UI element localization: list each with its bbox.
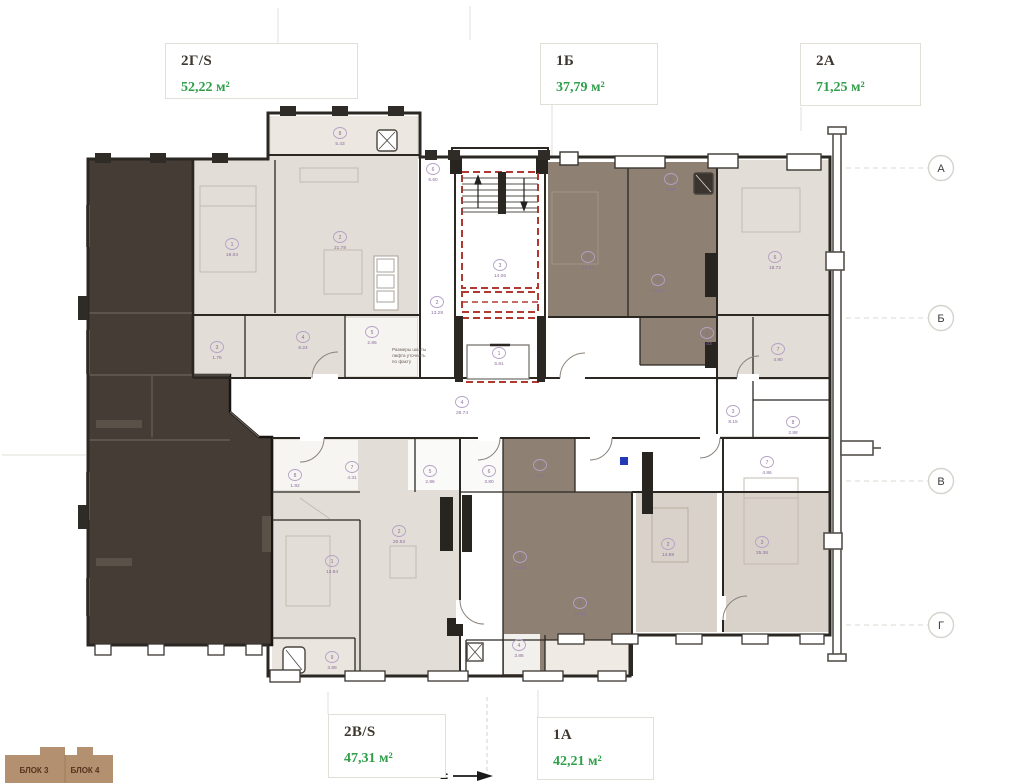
wall-foot xyxy=(148,644,164,655)
room-area: 2.82 xyxy=(666,187,676,193)
unit-area: 37,79 м² xyxy=(556,80,657,96)
wall-foot xyxy=(523,671,563,681)
wall-foot xyxy=(676,634,702,644)
pilaster xyxy=(95,153,111,163)
room-number: 2 xyxy=(436,300,439,306)
note-line: Размеры шахты xyxy=(392,347,426,352)
wall-foot xyxy=(558,634,584,644)
wall-foot xyxy=(246,644,262,655)
note-line: лифта уточнять xyxy=(392,353,426,358)
wall-foot xyxy=(208,644,224,655)
room-area: 8.24 xyxy=(298,345,308,351)
room-area: 4.31 xyxy=(347,475,357,481)
pilaster xyxy=(560,152,578,165)
room-area: 5.43 xyxy=(335,141,345,147)
unit-code: 1Б xyxy=(556,53,657,70)
wall-foot xyxy=(598,671,626,681)
room-area: 3.80 xyxy=(484,479,494,485)
grid-axis-label: Б xyxy=(937,313,944,325)
room-number: 4 xyxy=(461,400,464,406)
room-area: 2.86 xyxy=(425,479,435,485)
room-number: 3 xyxy=(732,409,735,415)
room-number: 8 xyxy=(294,473,297,479)
wall-foot xyxy=(428,671,468,681)
key-plan-block-3: БЛОК 3 xyxy=(20,766,49,775)
room-number: 1 xyxy=(231,242,234,248)
room-number: 1 xyxy=(539,463,542,469)
room-area: 2.03 xyxy=(702,341,712,347)
room-number: 2 xyxy=(667,542,670,548)
room-number: 6 xyxy=(488,469,491,475)
room-number: 2 xyxy=(657,278,660,284)
unit-callout-1a[interactable]: 1А 42,21 м² xyxy=(537,717,654,780)
room-number: 2 xyxy=(398,529,401,535)
wing-wall xyxy=(824,127,881,661)
room-area: 14.69 xyxy=(662,552,674,558)
pilaster xyxy=(708,154,738,168)
room-area: 4.90 xyxy=(773,357,783,363)
room-number: 6 xyxy=(432,167,435,173)
pilaster xyxy=(425,150,437,160)
unit-area: 47,31 м² xyxy=(344,751,445,767)
pilaster xyxy=(538,150,550,160)
room-number: 1 xyxy=(587,255,590,261)
room-area: 14.06 xyxy=(494,273,506,279)
room-area: 18.72 xyxy=(769,265,781,271)
room-number: 7 xyxy=(777,347,780,353)
room-number: 1 xyxy=(498,351,501,357)
wall-foot xyxy=(270,670,300,682)
wall-foot xyxy=(95,644,111,655)
room-area: 4.86 xyxy=(762,470,772,476)
room-area: 3.89 xyxy=(327,665,337,671)
pilaster xyxy=(212,153,228,163)
room-number: 5 xyxy=(429,469,432,475)
unit-callout-1b[interactable]: 1Б 37,79 м² xyxy=(540,43,658,105)
room-number: 8 xyxy=(792,420,795,426)
room-area: 13.94 xyxy=(326,569,338,575)
room-number: 3 xyxy=(499,263,502,269)
room-number: 6 xyxy=(774,255,777,261)
wall-foot xyxy=(345,671,385,681)
key-plan-block-4: БЛОК 4 xyxy=(71,766,100,775)
wall-foot xyxy=(742,634,768,644)
note-line: по факту xyxy=(392,359,412,364)
unit-callout-2gs[interactable]: 2Г/S 52,22 м² xyxy=(165,43,358,99)
unit-area: 71,25 м² xyxy=(816,80,920,96)
room-number: 4 xyxy=(518,643,521,649)
room-area: 21.78 xyxy=(334,245,346,251)
room-area: 6.27 xyxy=(535,473,545,479)
room-number: 3 xyxy=(216,345,219,351)
section-marker: = xyxy=(440,768,493,783)
pilaster xyxy=(448,150,460,160)
unit-code: 1А xyxy=(553,727,653,744)
room-number: 9 xyxy=(331,655,334,661)
room-number: 1 xyxy=(331,559,334,565)
room-area: 2.86 xyxy=(367,340,377,346)
room-number: 5 xyxy=(371,330,374,336)
room-number: 3 xyxy=(579,601,582,607)
room-number: 3 xyxy=(761,540,764,546)
unit-callout-2a[interactable]: 2А 71,25 м² xyxy=(800,43,921,106)
room-area: 13.04 xyxy=(582,265,594,271)
room-area: 1.92 xyxy=(290,483,300,489)
lift-note: Размеры шахты лифта уточнять по факту xyxy=(392,347,426,364)
pilaster xyxy=(787,154,821,170)
wall-foot xyxy=(800,634,824,644)
pilaster xyxy=(388,106,404,116)
room-fills xyxy=(193,116,830,676)
blue-marker xyxy=(620,457,628,465)
room-area: 8.15 xyxy=(728,419,738,425)
unit-area: 42,21 м² xyxy=(553,754,653,770)
unit-code: 2В/S xyxy=(344,724,445,741)
unit-code: 2Г/S xyxy=(181,53,357,70)
pilaster xyxy=(78,296,88,320)
room-area: 13.28 xyxy=(431,310,443,316)
room-area: 6.60 xyxy=(428,177,438,183)
unit-code: 2А xyxy=(816,53,920,70)
room-area: 15.11 xyxy=(574,611,586,617)
room-number: 2 xyxy=(519,555,522,561)
room-area: 13.82 xyxy=(514,565,526,571)
room-area: 25.36 xyxy=(756,550,768,556)
room-area: 5.81 xyxy=(494,361,504,367)
pilaster xyxy=(615,156,665,168)
room-number: 4 xyxy=(302,335,305,341)
grid-axis-bubbles: АБВГ xyxy=(846,156,954,638)
pilaster xyxy=(150,153,166,163)
room-area: 28.74 xyxy=(456,410,468,416)
room-number: 7 xyxy=(766,460,769,466)
section-arrow-icon xyxy=(477,771,493,781)
room-number: 6 xyxy=(706,331,709,337)
unit-callout-2vs[interactable]: 2В/S 47,31 м² xyxy=(328,714,446,778)
grid-axis-label: В xyxy=(937,476,944,488)
floor-plan-drawing: Размеры шахты лифта уточнять по факту = … xyxy=(0,0,1024,783)
room-area: 20.53 xyxy=(393,539,405,545)
room-area: 3.86 xyxy=(514,653,524,659)
room-number: 5 xyxy=(670,177,673,183)
grid-axis-label: Г xyxy=(938,620,944,632)
key-plan-shape xyxy=(5,747,113,783)
room-number: 2 xyxy=(339,235,342,241)
room-area: 14.48 xyxy=(652,288,664,294)
pilaster xyxy=(280,106,296,116)
pilaster xyxy=(332,106,348,116)
room-number: 8 xyxy=(339,131,342,137)
floor-plan-page: Размеры шахты лифта уточнять по факту = … xyxy=(0,0,1024,783)
wall-foot xyxy=(612,634,638,644)
room-number: 7 xyxy=(351,465,354,471)
room-area: 19.04 xyxy=(226,252,238,258)
room-area: 2.88 xyxy=(788,430,798,436)
pilaster xyxy=(78,505,88,529)
room-area: 1.76 xyxy=(212,355,222,361)
grid-axis-label: А xyxy=(937,163,945,175)
unit-area: 52,22 м² xyxy=(181,80,357,96)
